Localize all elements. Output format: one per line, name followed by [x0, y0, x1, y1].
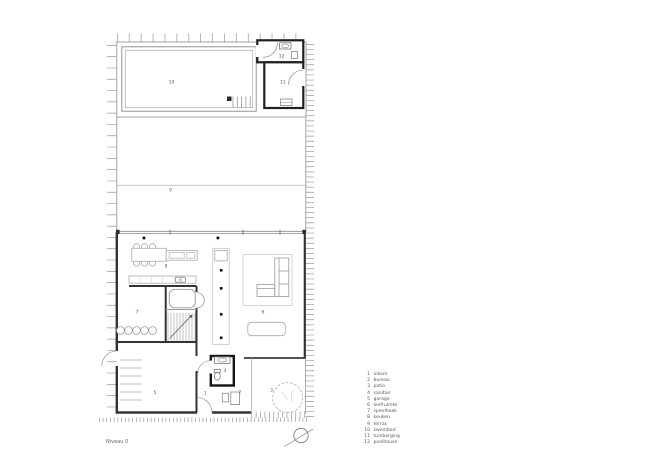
bath-icon [169, 289, 195, 308]
floor-plan-drawing: 1 2 3 4 5 6 7 8 9 10 11 12 [0, 0, 650, 459]
kitchen-island [166, 250, 197, 260]
floor-plan-page: 1 2 3 4 5 6 7 8 9 10 11 12 1inkom 2burea… [0, 0, 650, 459]
column-icon [220, 269, 223, 272]
sofa-icon [257, 258, 289, 297]
room-label-5: 5 [154, 390, 157, 396]
level-title: Niveau 0 [106, 439, 128, 445]
chair-icon [222, 393, 228, 402]
patio [251, 358, 302, 414]
coffee-table [248, 322, 285, 335]
hall-door-arc [197, 293, 205, 309]
room-label-9: 9 [169, 188, 172, 194]
rug [243, 255, 292, 306]
room-label-2: 2 [239, 390, 242, 396]
gate-door-arc [102, 351, 117, 366]
column-icon [220, 313, 223, 316]
front-door-arc [197, 398, 212, 413]
glass-facade [117, 231, 306, 233]
legend: 1inkom 2bureau 3patio 4sanitair 5garage … [360, 372, 400, 446]
office-furniture [222, 392, 239, 405]
playroom-seats [117, 327, 157, 335]
room-label-12: 12 [279, 54, 285, 60]
room-label-11: 11 [280, 80, 286, 86]
sanitary-door-arc [198, 361, 211, 374]
poolhouse [256, 40, 305, 108]
room-label-10: 10 [169, 80, 175, 86]
garage-shelving [120, 360, 142, 400]
living-room-furniture [243, 255, 292, 336]
room-label-4: 4 [224, 368, 227, 374]
sink-icon [175, 277, 185, 282]
pool-area [117, 40, 306, 117]
north-arrow-icon [285, 428, 314, 446]
room-label-1: 1 [204, 391, 207, 397]
column-icon [220, 337, 223, 340]
room-label-3: 3 [270, 388, 273, 394]
room-label-8: 8 [165, 264, 168, 270]
tree-icon [273, 383, 303, 413]
pool [122, 47, 256, 111]
pool-ladder-icon [227, 97, 250, 108]
room-label-7: 7 [136, 310, 139, 316]
kitchen-furniture [129, 244, 197, 284]
dining-table [132, 248, 166, 261]
stairs-icon [168, 313, 195, 341]
sanitary-room [198, 356, 234, 386]
column-icon [220, 287, 223, 290]
legend-item: 12poolhouse [360, 440, 400, 446]
room-label-6: 6 [262, 310, 265, 316]
column-row [213, 248, 229, 344]
